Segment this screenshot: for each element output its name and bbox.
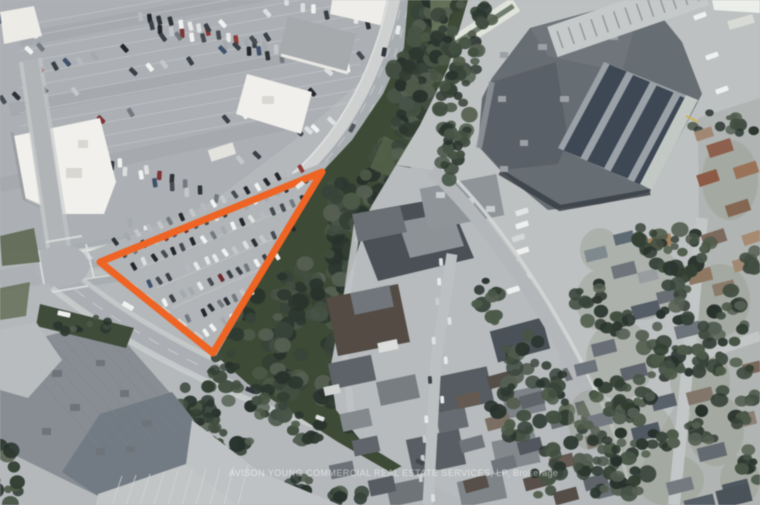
svg-text:AVISON YOUNG COMMERCIAL REAL E: AVISON YOUNG COMMERCIAL REAL ESTATE SERV… — [229, 468, 558, 478]
